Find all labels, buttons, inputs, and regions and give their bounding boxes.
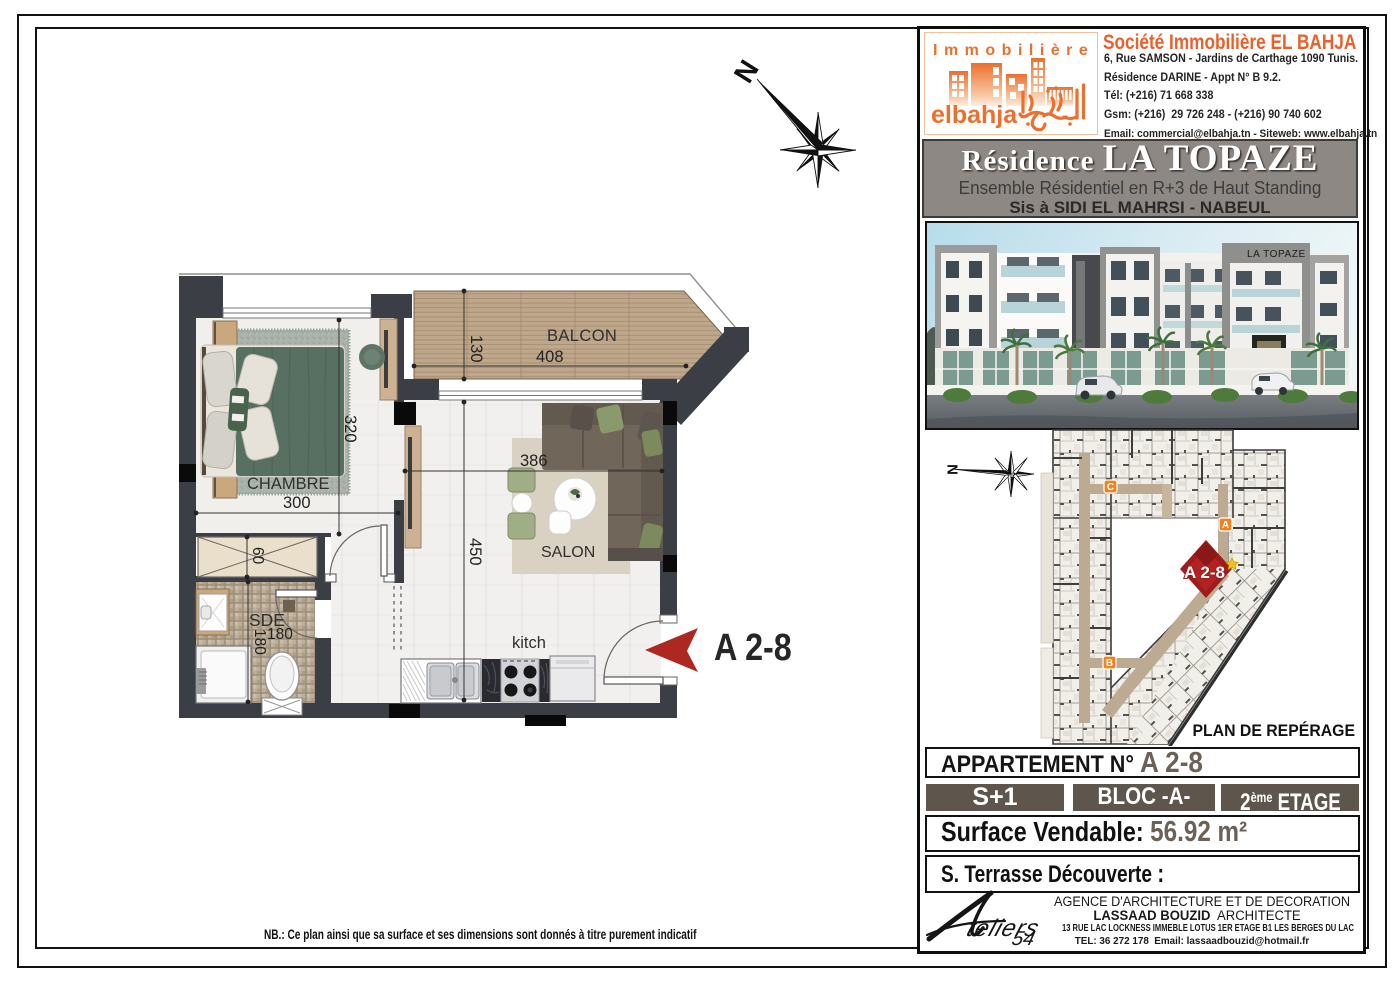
svg-text:C: C: [1107, 482, 1114, 493]
svg-text:B: B: [1106, 658, 1113, 669]
svg-text:450: 450: [466, 538, 484, 566]
svg-text:300: 300: [283, 494, 311, 512]
svg-text:A: A: [1222, 520, 1229, 531]
svg-text:CHAMBRE: CHAMBRE: [247, 475, 330, 493]
svg-text:320: 320: [341, 415, 359, 443]
svg-text:SDE: SDE: [249, 610, 285, 630]
svg-text:A 2-8: A 2-8: [1184, 563, 1225, 582]
svg-text:BALCON: BALCON: [547, 327, 617, 345]
svg-text:60: 60: [249, 547, 266, 565]
svg-text:386: 386: [520, 452, 548, 470]
svg-text:SALON: SALON: [541, 544, 595, 561]
svg-text:N: N: [728, 55, 765, 89]
svg-text:LA TOPAZE: LA TOPAZE: [1247, 249, 1306, 260]
svg-text:408: 408: [536, 348, 564, 366]
svg-text:54: 54: [1010, 928, 1038, 948]
svg-text:130: 130: [467, 335, 485, 363]
svg-text:180: 180: [251, 629, 268, 655]
svg-text:N: N: [944, 464, 960, 475]
svg-text:A 2-8: A 2-8: [714, 627, 792, 669]
svg-text:elbahja: elbahja: [931, 101, 1018, 129]
svg-text:kitch: kitch: [512, 634, 546, 652]
